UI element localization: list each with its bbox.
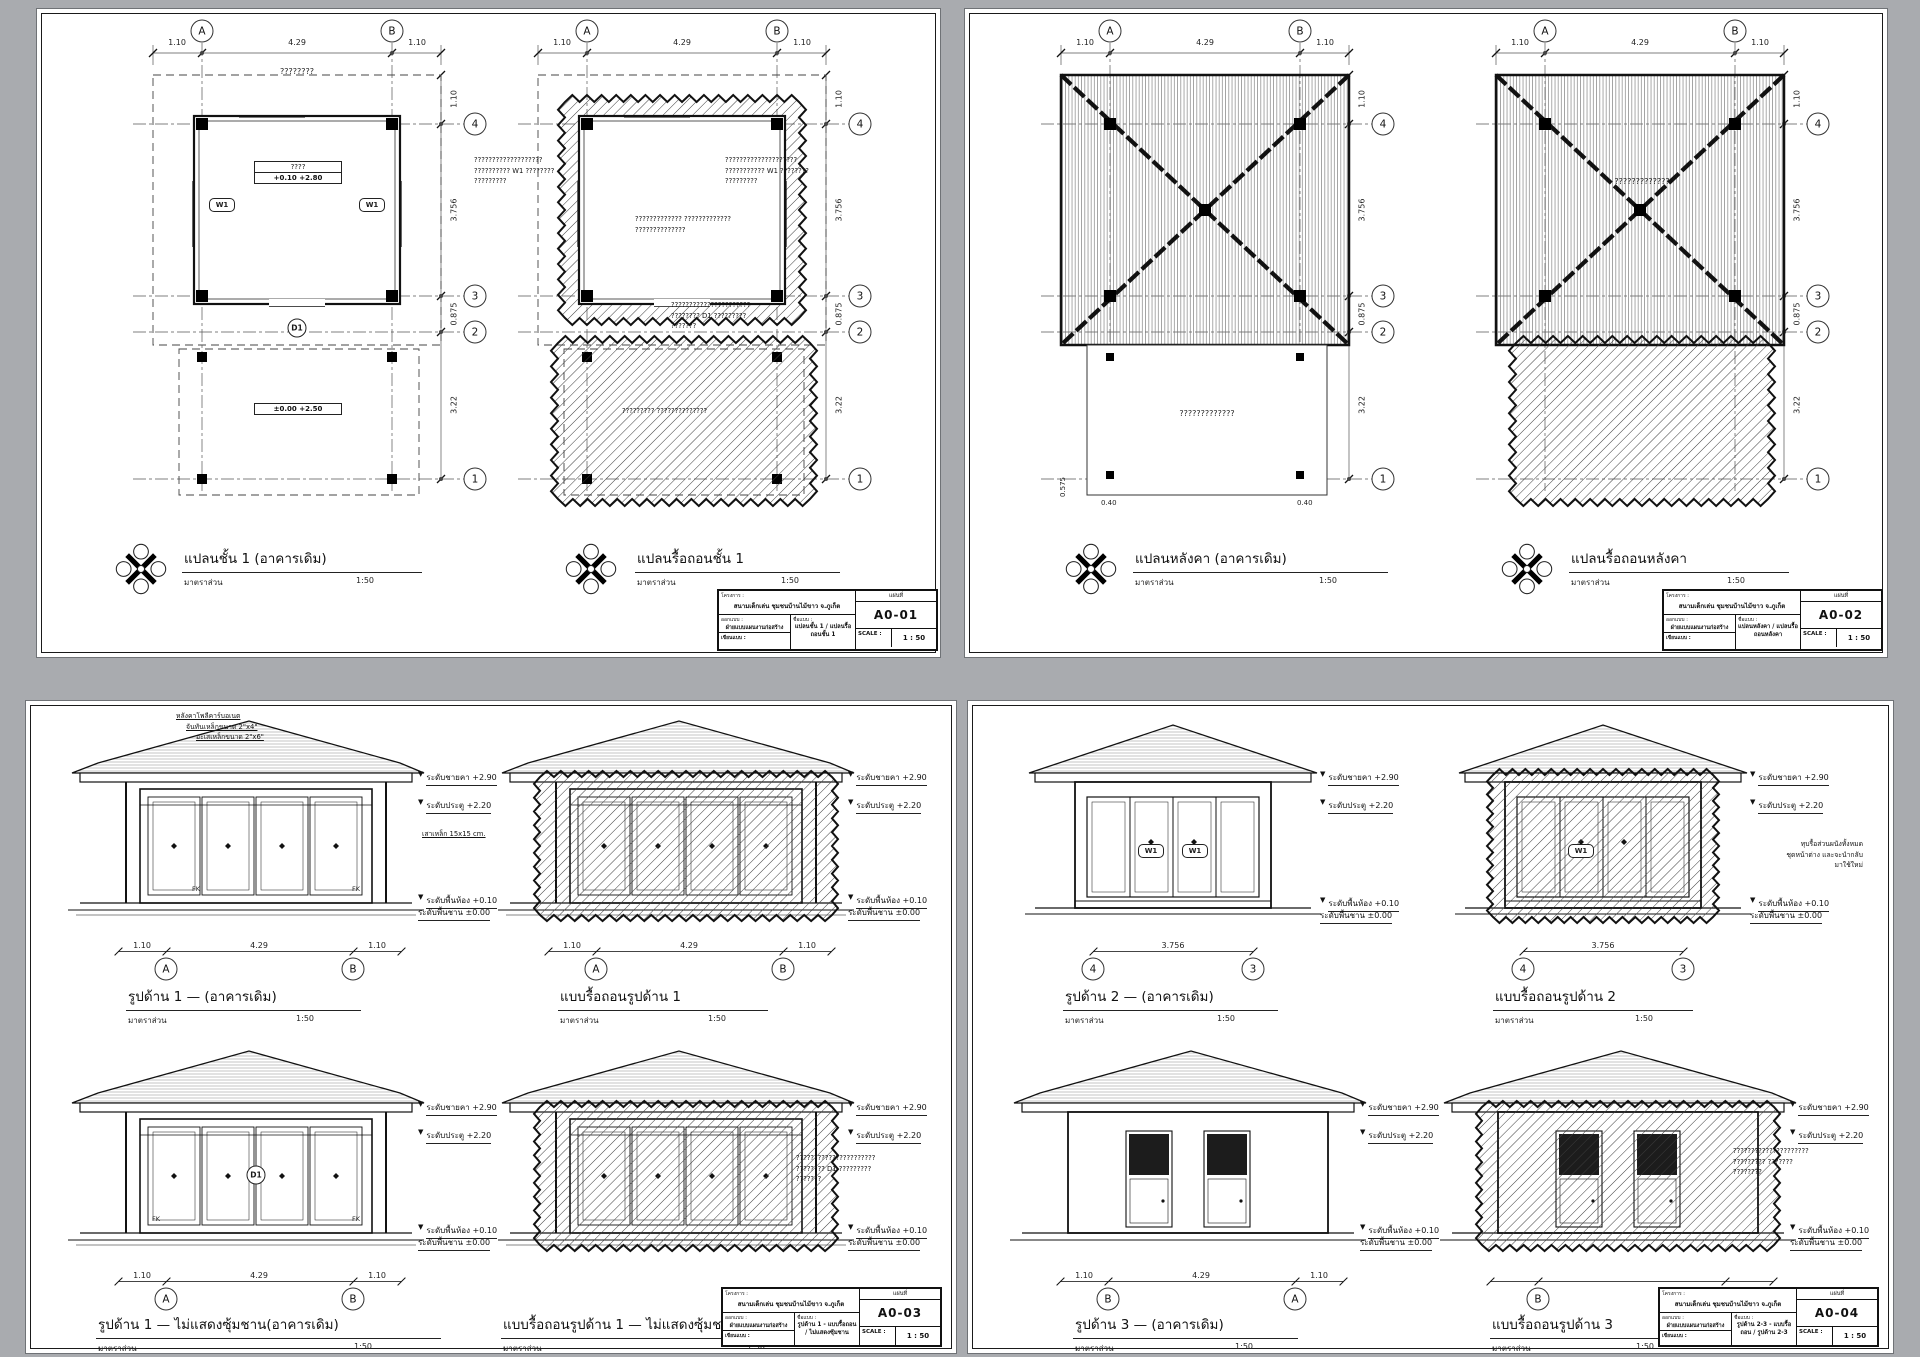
level-marker: ▼ระดับชายคา +2.90 <box>848 771 927 786</box>
level-marker: ▼ระดับประตู +2.20 <box>1360 1129 1433 1144</box>
level-text: ระดับชายคา +2.90 <box>1368 1101 1438 1116</box>
steel-column-note: เสาเหล็ก 15x15 cm. <box>422 829 486 840</box>
grid-bubble-a: A <box>191 20 214 43</box>
grid-bubble-a: A <box>576 20 599 43</box>
drawn-row: เขียนแบบ : <box>719 633 790 643</box>
grid-bubble-4: 4 <box>1807 113 1830 136</box>
drawing-title-group: แปลนรื้อถอนชั้น 1 มาตราส่วน1:50 <box>635 547 840 589</box>
sheet-code: A0-02 <box>1801 602 1881 629</box>
note-line: หลังคาโพลีคาร์บอเนต <box>176 711 264 722</box>
level-marker: ระดับพื้นชาน ±0.00 <box>848 906 920 921</box>
drawing-title-group: แบบรื้อถอนรูปด้าน 1 มาตราส่วน1:50 <box>558 985 768 1027</box>
title-block-designer-cell: ออกแบบ :ฝ่ายแบบแผนงานก่อสร้าง เขียนแบบ : <box>723 1313 795 1347</box>
drawing-title: แปลนรื้อถอนชั้น 1 <box>635 547 840 573</box>
grid-bubble-2: 2 <box>1372 321 1395 344</box>
designer-row: ออกแบบ :ฝ่ายแบบแผนงานก่อสร้าง <box>719 615 790 633</box>
fk-label: FK <box>352 1215 360 1223</box>
designer-label: ออกแบบ : <box>721 617 743 623</box>
sheet-code: A0-01 <box>856 602 936 629</box>
scale-label: มาตราส่วน <box>98 1342 137 1355</box>
level-text: ระดับชายคา +2.90 <box>426 771 496 786</box>
grid-bubble-b: B <box>772 958 795 981</box>
dim-label: 4.29 <box>1196 38 1214 47</box>
roof-plan-demolition <box>1410 9 1830 509</box>
roof-plan-existing <box>975 9 1395 509</box>
dim-label: 3.756 <box>1162 941 1185 950</box>
roof-geometry <box>1061 75 1349 345</box>
grid-bubble-b: B <box>766 20 789 43</box>
elevation-2-demolition <box>1453 701 1753 941</box>
drawing-title-group: รูปด้าน 2 — (อาคารเดิม) มาตราส่วน1:50 <box>1063 985 1278 1027</box>
level-marker: ระดับพื้นชาน ±0.00 <box>418 906 490 921</box>
demolition-cloud <box>1487 769 1719 923</box>
level-marker: ▼ระดับประตู +2.20 <box>1320 799 1393 814</box>
grid-bubble-3: 3 <box>1807 285 1830 308</box>
level-text: ระดับชายคา +2.90 <box>856 771 926 786</box>
scale-value: 1:50 <box>1319 576 1337 589</box>
level-text: ระดับพื้นชาน ±0.00 <box>1360 1236 1432 1251</box>
elevation-1-demolition <box>496 701 856 941</box>
drawing-title: รูปด้าน 1 — ไม่แสดงซุ้มชาน(อาคารเดิม) <box>96 1313 441 1339</box>
drawing-title: รูปด้าน 1 — (อาคารเดิม) <box>126 985 361 1011</box>
level-text: ระดับชายคา +2.90 <box>1328 771 1398 786</box>
drawing-name: แปลนชั้น 1 / แปลนรื้อถอนชั้น 1 <box>791 624 855 640</box>
window-symbol-w1: W1 <box>1568 844 1594 858</box>
drawing-title: แบบรื้อถอนรูปด้าน 1 <box>558 985 768 1011</box>
demolition-note: ????????????????????? ????????? ??????? … <box>1733 1146 1809 1178</box>
dim-label: 3.756 <box>1358 199 1367 222</box>
scale-value: 1:50 <box>356 576 374 589</box>
grid-bubble-1: 1 <box>849 468 872 491</box>
name-label: ชื่อแบบ : <box>793 616 812 624</box>
dim-label: 1.10 <box>368 941 386 950</box>
dimension-line <box>1490 1281 1773 1282</box>
sheet-label: แผ่นที่ <box>860 1289 940 1300</box>
dim-label: 1.10 <box>1316 38 1334 47</box>
scale-value: 1 : 50 <box>892 629 936 647</box>
scale-value: 1:50 <box>1635 1014 1653 1027</box>
sheet-a0-02: A B 4 3 2 1 1.10 4.29 1.10 1.10 3.756 0.… <box>964 8 1888 658</box>
level-text: ระดับพื้นชาน ±0.00 <box>1750 909 1822 924</box>
dim-label: 3.22 <box>1358 396 1367 414</box>
scale-label: มาตราส่วน <box>1571 576 1610 589</box>
level-marker: ระดับพื้นชาน ±0.00 <box>1360 1236 1432 1251</box>
scale-value: 1:50 <box>781 576 799 589</box>
sheet-code: A0-04 <box>1797 1300 1877 1327</box>
grid-bubble-a: A <box>1534 20 1557 43</box>
scale-label: SCALE : <box>860 1327 896 1345</box>
roof-deck <box>1087 345 1327 495</box>
dim-label: 4.29 <box>673 38 691 47</box>
grid-bubble-1: 1 <box>1372 468 1395 491</box>
window-symbol-w1: W1 <box>359 198 385 212</box>
grid-bubble-b: B <box>1724 20 1747 43</box>
level-marker: ▼ระดับชายคา +2.90 <box>848 1101 927 1116</box>
door-symbol-d1: D1 <box>288 319 307 338</box>
title-block-name-cell: ชื่อแบบ : รูปด้าน 1 - แบบรื้อถอน / ไม่แส… <box>795 1313 860 1347</box>
note-line: ?????????????????????? <box>671 300 750 311</box>
title-block-name-cell: ชื่อแบบ : แปลนชั้น 1 / แปลนรื้อถอนชั้น 1 <box>791 615 856 649</box>
grid-bubble-a: A <box>155 958 178 981</box>
level-marker: ▼ระดับชายคา +2.90 <box>418 1101 497 1116</box>
plan-walls <box>153 75 441 495</box>
drawing-name: รูปด้าน 1 - แบบรื้อถอน / ไม่แสดงซุ้มชาน <box>795 1322 859 1338</box>
scale-value: 1 : 50 <box>896 1327 940 1345</box>
north-arrow-icon <box>115 543 167 595</box>
level-marker: ระดับพื้นชาน ±0.00 <box>1320 909 1392 924</box>
scale-label: SCALE : <box>1797 1327 1833 1345</box>
level-text: ระดับชายคา +2.90 <box>856 1101 926 1116</box>
grid-bubble-b: B <box>1289 20 1312 43</box>
dim-label: 1.10 <box>835 90 844 108</box>
dimension-line <box>1523 951 1683 952</box>
note-line: ???????? D1 ????????? <box>671 311 750 322</box>
dim-label: 3.22 <box>1793 396 1802 414</box>
drawing-title-group: แบบรื้อถอนรูปด้าน 2 มาตราส่วน1:50 <box>1493 985 1693 1027</box>
note-line: ????????? ??????? <box>1733 1157 1809 1168</box>
sheet-a0-03: หลังคาโพลีคาร์บอเนต จันทันเหล็กขนาด 2"x4… <box>25 700 957 1354</box>
fk-label: FK <box>152 1215 160 1223</box>
dim-label: 1.10 <box>798 941 816 950</box>
deck-note: ????????????? <box>1179 409 1234 418</box>
north-arrow-icon <box>1065 543 1117 595</box>
grid-bubble-4: 4 <box>1512 958 1535 981</box>
level-marker: ▼ระดับชายคา +2.90 <box>1360 1101 1439 1116</box>
title-block: โครงการ : สนามเด็กเล่น ชุมชนบ้านไม้ขาว จ… <box>717 589 938 651</box>
level-marker: ▼ระดับประตู +2.20 <box>1790 1129 1863 1144</box>
level-marker: ระดับพื้นชาน ±0.00 <box>1750 909 1822 924</box>
title-block-project-cell: โครงการ : สนามเด็กเล่น ชุมชนบ้านไม้ขาว จ… <box>723 1289 860 1313</box>
title-block-designer-cell: ออกแบบ :ฝ่ายแบบแผนงานก่อสร้าง เขียนแบบ : <box>1660 1313 1732 1347</box>
grid-bubble-a: A <box>155 1288 178 1311</box>
dim-label: 0.875 <box>1358 303 1367 326</box>
dim-label: 1.10 <box>553 38 571 47</box>
dim-label: 1.10 <box>368 1271 386 1280</box>
level-marker: ▼ระดับประตู +2.20 <box>848 1129 921 1144</box>
scale-label: มาตราส่วน <box>560 1014 599 1027</box>
scale-label: SCALE : <box>856 629 892 647</box>
title-block-project-cell: โครงการ : สนามเด็กเล่น ชุมชนบ้านไม้ขาว จ… <box>1660 1289 1797 1313</box>
demolition-cloud-terrace <box>1509 336 1775 506</box>
dim-label: 4.29 <box>680 941 698 950</box>
drawing-title: รูปด้าน 2 — (อาคารเดิม) <box>1063 985 1278 1011</box>
note-line: ??????????? W1 ???????? <box>725 166 809 177</box>
dim-label: 0.40 <box>1101 499 1117 507</box>
dim-label: 1.10 <box>168 38 186 47</box>
floor-plan-existing <box>67 9 487 509</box>
dim-label: 1.10 <box>1511 38 1529 47</box>
roof-note: ???????? <box>280 67 314 76</box>
scale-label: มาตราส่วน <box>1495 1014 1534 1027</box>
name-label: ชื่อแบบ : <box>797 1314 816 1322</box>
level-marker: ▼ระดับชายคา +2.90 <box>1750 771 1829 786</box>
level-text: ระดับชายคา +2.90 <box>1758 771 1828 786</box>
note-line: ??????? <box>671 321 750 332</box>
dim-label: 0.40 <box>1297 499 1313 507</box>
note-line: ???????? D1 ????????? <box>796 1164 875 1175</box>
scale-label: มาตราส่วน <box>1065 1014 1104 1027</box>
designer-name: ฝ่ายแบบแผนงานก่อสร้าง <box>1666 624 1733 632</box>
grid-bubble-4: 4 <box>849 113 872 136</box>
designer-name: ฝ่ายแบบแผนงานก่อสร้าง <box>721 624 788 632</box>
grid-bubble-b: B <box>381 20 404 43</box>
room-tag-name: ???? <box>255 162 341 173</box>
note-line: เสาเหล็ก 15x15 cm. <box>422 829 486 840</box>
note-line: ชุดหน้าต่าง และจะนำกลับ <box>1733 850 1863 861</box>
grid-bubble-1: 1 <box>1807 468 1830 491</box>
grid-bubble-4: 4 <box>1082 958 1105 981</box>
drawing-viewer-page: { "ui": {"bg": "#a9abaf", "paper": "#fff… <box>0 0 1920 1357</box>
level-text: ระดับประตู +2.20 <box>856 799 921 814</box>
name-label: ชื่อแบบ : <box>1734 1314 1753 1322</box>
level-marker: ระดับพื้นชาน ±0.00 <box>1790 1236 1862 1251</box>
grid-bubble-a: A <box>585 958 608 981</box>
demolition-note: ?????????????????????? ???????? D1 ?????… <box>671 300 750 332</box>
dimension-line <box>1060 1281 1343 1282</box>
deck-tag-levels: ±0.00 +2.50 <box>255 404 341 414</box>
title-block-designer-cell: ออกแบบ :ฝ่ายแบบแผนงานก่อสร้าง เขียนแบบ : <box>719 615 791 649</box>
dim-label: 3.756 <box>1793 199 1802 222</box>
window-symbol-w1: W1 <box>209 198 235 212</box>
note-line: ????????? <box>725 176 809 187</box>
dim-label: 1.10 <box>1751 38 1769 47</box>
level-marker: ▼ระดับชายคา +2.90 <box>1790 1101 1869 1116</box>
reuse-note: ทุบรื้อส่วนผนังทั้งหมด ชุดหน้าต่าง และจะ… <box>1733 839 1863 871</box>
drawing-title: แปลนชั้น 1 (อาคารเดิม) <box>182 547 422 573</box>
door-symbol-d1: D1 <box>247 1166 266 1185</box>
drawing-title-group: แปลนหลังคา (อาคารเดิม) มาตราส่วน1:50 <box>1133 547 1388 589</box>
drawn-row: เขียนแบบ : <box>723 1331 794 1341</box>
note-line: มาใช้ใหม่ <box>1733 860 1863 871</box>
roof-annotation: หลังคาโพลีคาร์บอเนต จันทันเหล็กขนาด 2"x4… <box>176 711 264 743</box>
elevation-3-existing <box>1008 1031 1368 1271</box>
dim-label: 3.22 <box>450 396 459 414</box>
grid-bubble-2: 2 <box>1807 321 1830 344</box>
dim-label: 0.875 <box>450 303 459 326</box>
dim-label: 1.10 <box>1358 90 1367 108</box>
scale-value: 1:50 <box>354 1342 372 1355</box>
title-block: โครงการ : สนามเด็กเล่น ชุมชนบ้านไม้ขาว จ… <box>1658 1287 1879 1347</box>
dim-label: 3.756 <box>1592 941 1615 950</box>
note-line: ?????????????? <box>635 225 731 236</box>
dim-label: 0.875 <box>1793 303 1802 326</box>
dimension-line <box>118 1281 401 1282</box>
project-name: สนามเด็กเล่น ชุมชนบ้านไม้ขาว จ.ภูเก็ต <box>723 1299 859 1309</box>
demolition-note: ??????????????????? ?????????? W1 ??????… <box>474 155 554 187</box>
demolition-cloud-terrace <box>551 336 817 506</box>
north-arrow-icon <box>1501 543 1553 595</box>
sheet-label: แผ่นที่ <box>856 591 936 602</box>
note-line: ???????????????????? <box>725 155 809 166</box>
floor-plan-demolition <box>452 9 872 509</box>
dim-label: 1.10 <box>793 38 811 47</box>
dim-label: 4.29 <box>288 38 306 47</box>
fk-label: FK <box>192 885 200 893</box>
project-name: สนามเด็กเล่น ชุมชนบ้านไม้ขาว จ.ภูเก็ต <box>719 601 855 611</box>
drawn-row: เขียนแบบ : <box>1660 1331 1731 1341</box>
level-text: ระดับประตู +2.20 <box>426 1129 491 1144</box>
grid-bubble-b: B <box>342 1288 365 1311</box>
level-marker: ▼ระดับชายคา +2.90 <box>1320 771 1399 786</box>
level-text: ระดับประตู +2.20 <box>1368 1129 1433 1144</box>
elevation-2-existing <box>1023 701 1323 941</box>
dim-label: 4.29 <box>250 1271 268 1280</box>
level-marker: ▼ระดับชายคา +2.90 <box>418 771 497 786</box>
note-line: อะเสเหล็กขนาด 2"x6" <box>176 732 264 743</box>
level-text: ระดับชายคา +2.90 <box>1798 1101 1868 1116</box>
scale-label: มาตราส่วน <box>128 1014 167 1027</box>
dim-label: 0.575 <box>1059 477 1067 497</box>
title-block-name-cell: ชื่อแบบ : แปลนหลังคา / แปลนรื้อถอนหลังคา <box>1736 615 1801 649</box>
note-line: จันทันเหล็กขนาด 2"x4" <box>176 722 264 733</box>
demolition-note: ???????????????????? ??????????? W1 ????… <box>725 155 809 187</box>
grid-bubble-4: 4 <box>464 113 487 136</box>
grid-bubble-3: 3 <box>1242 958 1265 981</box>
grid-bubble-2: 2 <box>849 321 872 344</box>
title-block-sheet-cell: แผ่นที่ A0-04 SCALE :1 : 50 <box>1797 1289 1877 1347</box>
title-block: โครงการ : สนามเด็กเล่น ชุมชนบ้านไม้ขาว จ… <box>1662 589 1883 651</box>
drawing-title-group: แปลนรื้อถอนหลังคา มาตราส่วน1:50 <box>1569 547 1789 589</box>
level-text: ระดับประตู +2.20 <box>1798 1129 1863 1144</box>
drawing-title-group: แปลนชั้น 1 (อาคารเดิม) มาตราส่วน1:50 <box>182 547 422 589</box>
dimension-line <box>548 951 831 952</box>
elevation-1-no-porch <box>66 1031 426 1271</box>
demolition-note: ?????????????????????? ???????? D1 ?????… <box>796 1153 875 1185</box>
sheet-code: A0-03 <box>860 1300 940 1327</box>
grid-bubble-3: 3 <box>1372 285 1395 308</box>
window-symbol-w1: W1 <box>1182 844 1208 858</box>
demolition-cloud <box>534 771 838 921</box>
dimension-line <box>118 951 401 952</box>
drawing-title: แปลนหลังคา (อาคารเดิม) <box>1133 547 1388 573</box>
drawing-title: รูปด้าน 3 — (อาคารเดิม) <box>1073 1313 1298 1339</box>
dim-label: 4.29 <box>1631 38 1649 47</box>
level-marker: ▼ระดับประตู +2.20 <box>418 1129 491 1144</box>
dim-label: 1.10 <box>1075 1271 1093 1280</box>
scale-value: 1:50 <box>1636 1342 1654 1355</box>
designer-name: ฝ่ายแบบแผนงานก่อสร้าง <box>725 1322 792 1330</box>
scale-value: 1:50 <box>1235 1342 1253 1355</box>
name-label: ชื่อแบบ : <box>1738 616 1757 624</box>
grid-bubble-b: B <box>1097 1288 1120 1311</box>
grid-bubble-3: 3 <box>849 285 872 308</box>
level-text: ระดับพื้นชาน ±0.00 <box>1320 909 1392 924</box>
title-block-sheet-cell: แผ่นที่ A0-03 SCALE :1 : 50 <box>860 1289 940 1347</box>
grid-bubble-b: B <box>1527 1288 1550 1311</box>
scale-label: มาตราส่วน <box>1135 576 1174 589</box>
roof-geometry <box>1496 75 1784 345</box>
dim-label: 1.10 <box>563 941 581 950</box>
scale-label: มาตราส่วน <box>503 1342 542 1355</box>
note-line: ????????? ?????????????? <box>622 406 707 417</box>
dim-label: 1.10 <box>1076 38 1094 47</box>
grid-bubble-4: 4 <box>1372 113 1395 136</box>
title-block-designer-cell: ออกแบบ :ฝ่ายแบบแผนงานก่อสร้าง เขียนแบบ : <box>1664 615 1736 649</box>
grid-bubble-3: 3 <box>1672 958 1695 981</box>
sheet-label: แผ่นที่ <box>1801 591 1881 602</box>
drawing-title-group: รูปด้าน 3 — (อาคารเดิม) มาตราส่วน1:50 <box>1073 1313 1298 1355</box>
designer-row: ออกแบบ :ฝ่ายแบบแผนงานก่อสร้าง <box>1660 1313 1731 1331</box>
note-line: ????????? <box>474 176 554 187</box>
note-line: ????????????? ????????????? <box>635 214 731 225</box>
dim-label: 3.756 <box>450 199 459 222</box>
level-text: ระดับประตู +2.20 <box>1328 799 1393 814</box>
designer-label: ออกแบบ : <box>1666 617 1688 623</box>
level-marker: ▼ระดับประตู +2.20 <box>418 799 491 814</box>
level-text: ระดับพื้นชาน ±0.00 <box>848 906 920 921</box>
deck-tag: ±0.00 +2.50 <box>254 403 342 415</box>
sheet-label: แผ่นที่ <box>1797 1289 1877 1300</box>
room-tag-levels: +0.10 +2.80 <box>255 173 341 183</box>
demolition-note: ????????? ?????????????? <box>622 406 707 417</box>
grid-bubble-b: B <box>342 958 365 981</box>
grid-bubble-2: 2 <box>464 321 487 344</box>
project-name: สนามเด็กเล่น ชุมชนบ้านไม้ขาว จ.ภูเก็ต <box>1660 1299 1796 1309</box>
title-block-sheet-cell: แผ่นที่ A0-02 SCALE :1 : 50 <box>1801 591 1881 649</box>
scale-value: 1:50 <box>708 1014 726 1027</box>
level-text: ระดับประตู +2.20 <box>426 799 491 814</box>
level-marker: ▼ระดับประตู +2.20 <box>1750 799 1823 814</box>
level-text: ระดับประตู +2.20 <box>1758 799 1823 814</box>
note-line: ????????????????????? <box>1733 1146 1809 1157</box>
scale-label: มาตราส่วน <box>184 576 223 589</box>
dim-label: 4.29 <box>250 941 268 950</box>
level-marker: ระดับพื้นชาน ±0.00 <box>418 1236 490 1251</box>
demolition-cloud <box>534 1101 838 1251</box>
fk-label: FK <box>352 885 360 893</box>
note-line: ทุบรื้อส่วนผนังทั้งหมด <box>1733 839 1863 850</box>
dim-label: 1.10 <box>133 1271 151 1280</box>
designer-row: ออกแบบ :ฝ่ายแบบแผนงานก่อสร้าง <box>1664 615 1735 633</box>
sheet-a0-04: W1 W1 ▼ระดับชายคา +2.90 ▼ระดับประตู +2.2… <box>967 700 1894 1354</box>
dim-label: 0.875 <box>835 303 844 326</box>
scale-value: 1 : 50 <box>1837 629 1881 647</box>
drawing-title-group: รูปด้าน 1 — ไม่แสดงซุ้มชาน(อาคารเดิม) มา… <box>96 1313 441 1355</box>
dim-label: 1.10 <box>408 38 426 47</box>
project-label: โครงการ : <box>725 1290 748 1298</box>
grid-bubble-a: A <box>1099 20 1122 43</box>
scale-label: มาตราส่วน <box>1492 1342 1531 1355</box>
project-label: โครงการ : <box>1666 592 1689 600</box>
dim-label: 1.10 <box>133 941 151 950</box>
drawing-title: แบบรื้อถอนรูปด้าน 2 <box>1493 985 1693 1011</box>
title-block-name-cell: ชื่อแบบ : รูปด้าน 2-3 - แบบรื้อถอน / รูป… <box>1732 1313 1797 1347</box>
designer-label: ออกแบบ : <box>1662 1315 1684 1321</box>
title-block: โครงการ : สนามเด็กเล่น ชุมชนบ้านไม้ขาว จ… <box>721 1287 942 1347</box>
note-line: ?????????? W1 ???????? <box>474 166 554 177</box>
dim-label: 4.29 <box>1192 1271 1210 1280</box>
scale-value: 1:50 <box>1217 1014 1235 1027</box>
title-block-project-cell: โครงการ : สนามเด็กเล่น ชุมชนบ้านไม้ขาว จ… <box>1664 591 1801 615</box>
note-line: ??????? <box>796 1174 875 1185</box>
level-text: ระดับพื้นชาน ±0.00 <box>1790 1236 1862 1251</box>
drawing-title-group: รูปด้าน 1 — (อาคารเดิม) มาตราส่วน1:50 <box>126 985 361 1027</box>
scale-value: 1:50 <box>296 1014 314 1027</box>
note-line: ?????????????????????? <box>796 1153 875 1164</box>
scale-value: 1 : 50 <box>1833 1327 1877 1345</box>
room-tag: ???? +0.10 +2.80 <box>254 161 342 184</box>
sheet-a0-01: A B 4 3 2 1 1.10 4.29 1.10 1.10 3.756 0.… <box>36 8 941 658</box>
elevation-1-no-porch-demolition <box>496 1031 856 1271</box>
drawing-title: แปลนรื้อถอนหลังคา <box>1569 547 1789 573</box>
demolition-note: ????????????? ????????????? ????????????… <box>635 214 731 235</box>
drawing-name: แปลนหลังคา / แปลนรื้อถอนหลังคา <box>1736 624 1800 640</box>
note-line: ??????????????????? <box>474 155 554 166</box>
dim-label: 1.10 <box>450 90 459 108</box>
level-text: ระดับพื้นชาน ±0.00 <box>418 906 490 921</box>
level-marker: ▼ระดับประตู +2.20 <box>848 799 921 814</box>
scale-value: 1:50 <box>1727 576 1745 589</box>
